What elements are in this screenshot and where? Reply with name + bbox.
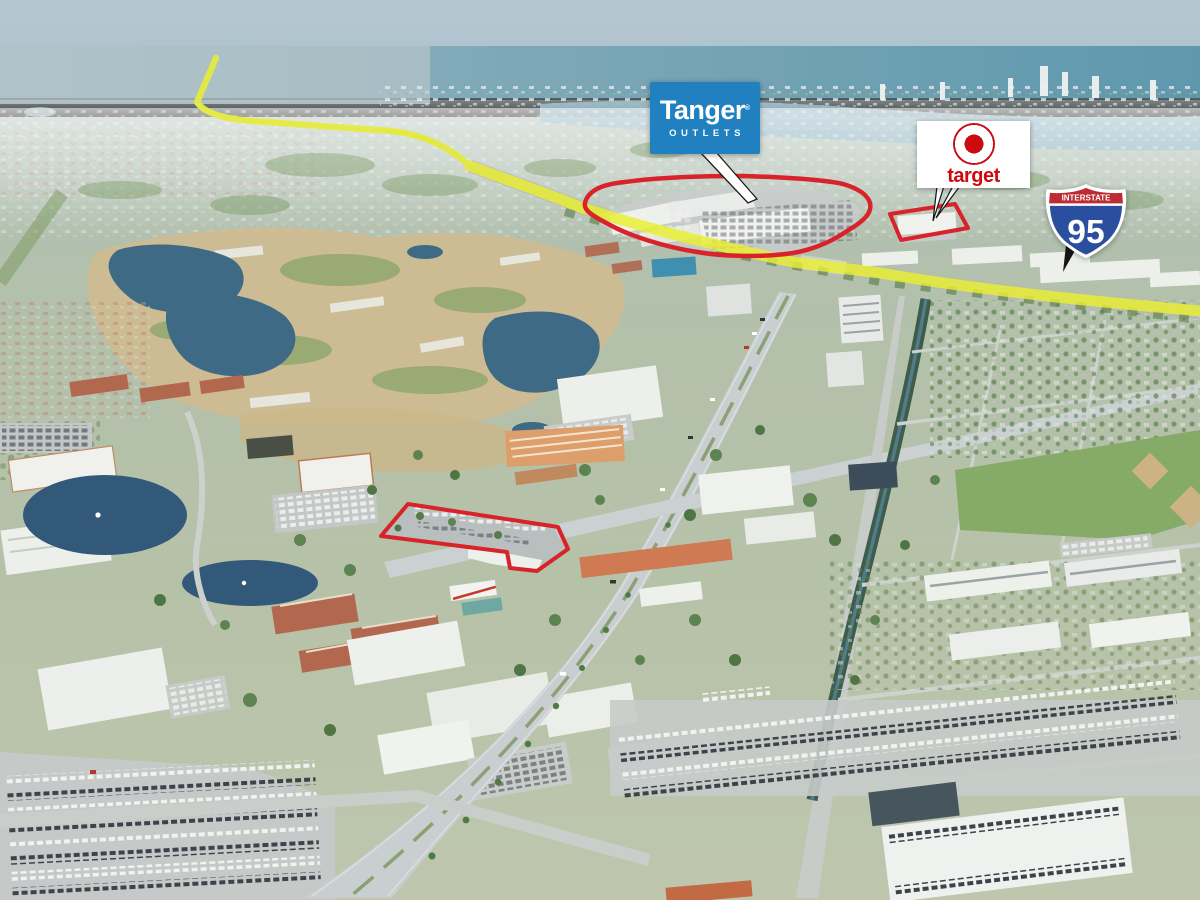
interstate-label: INTERSTATE [1062, 193, 1111, 202]
target-logo: target [917, 121, 1030, 188]
tanger-outlets-logo: Tanger® OUTLETS [650, 82, 760, 154]
registered-mark: ® [745, 105, 750, 112]
target-bullseye-icon [953, 123, 995, 165]
tanger-outlets-label: OUTLETS [669, 128, 745, 139]
interstate-95-shield: INTERSTATE 95 [1044, 183, 1128, 259]
target-pointer-left [933, 186, 944, 221]
tanger-brand: Tanger® [660, 97, 750, 124]
subject-property-outline [381, 504, 568, 571]
aerial-photo-stage: Tanger® OUTLETS target INTERSTATE 95 [0, 0, 1200, 900]
interstate-shield-icon: INTERSTATE 95 [1044, 183, 1128, 259]
route-number: 95 [1067, 214, 1104, 251]
target-brand: target [947, 166, 1000, 186]
target-parcel-outline [890, 204, 968, 240]
